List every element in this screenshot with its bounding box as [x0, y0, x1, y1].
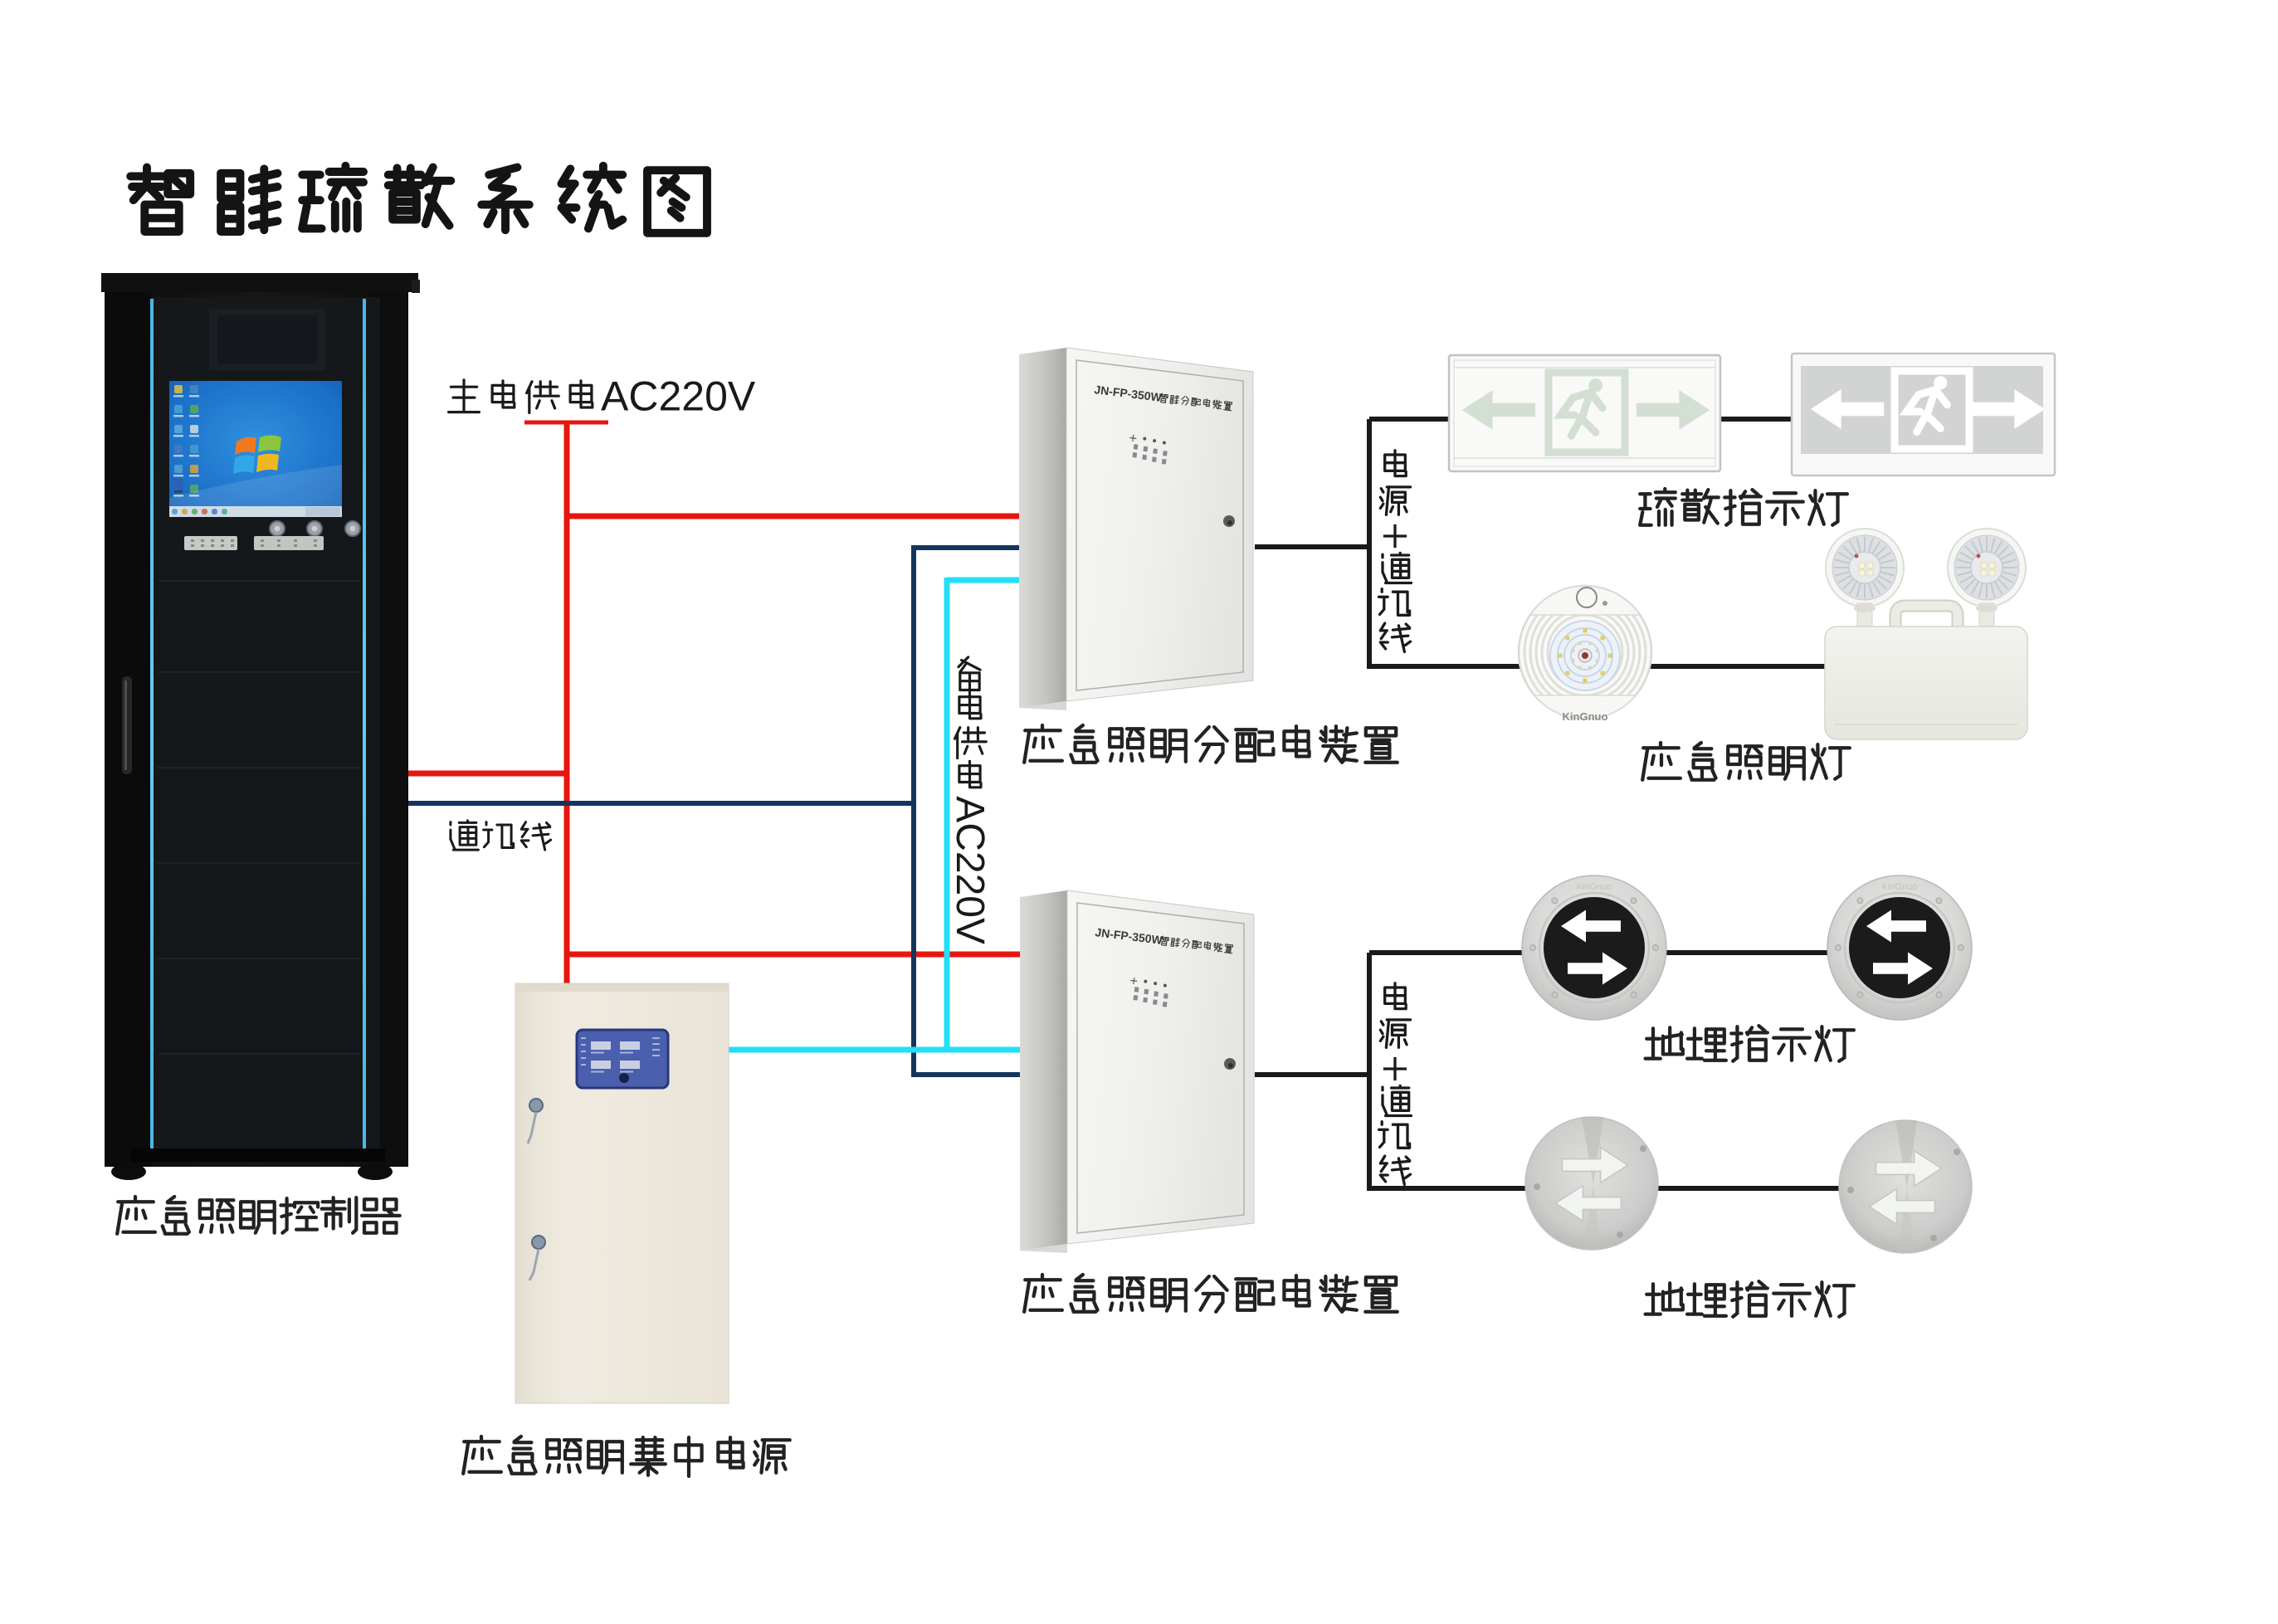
- svg-text:KinGnuo: KinGnuo: [1577, 882, 1612, 892]
- svg-text:AC220V: AC220V: [601, 373, 756, 420]
- svg-text:KinGnuo: KinGnuo: [1882, 882, 1918, 892]
- svg-text:KinGnuo: KinGnuo: [1563, 710, 1608, 723]
- svg-text:AC220V: AC220V: [948, 796, 992, 944]
